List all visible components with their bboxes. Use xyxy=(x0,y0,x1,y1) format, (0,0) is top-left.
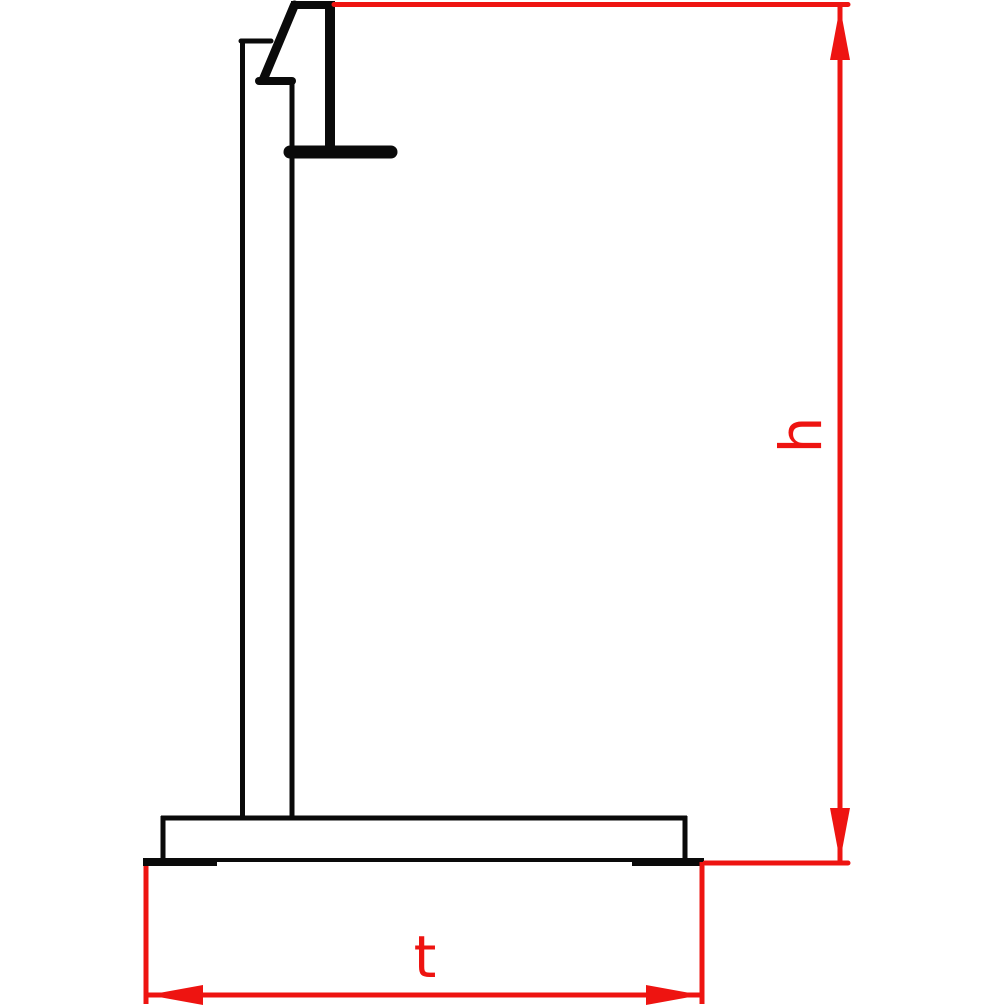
dimension-label-t: t xyxy=(414,923,437,991)
dim-t-arrow-left xyxy=(148,985,203,1005)
dim-t-arrow-right xyxy=(646,985,701,1005)
structure-layer xyxy=(143,1,704,862)
dim-h-arrow-down xyxy=(830,808,850,861)
technical-drawing: h t xyxy=(0,0,1000,1007)
drawing-page: h t xyxy=(0,0,1000,1007)
dim-h-arrow-up xyxy=(830,7,850,60)
dimension-label-h: h xyxy=(767,417,835,454)
dimension-layer xyxy=(146,5,850,1006)
